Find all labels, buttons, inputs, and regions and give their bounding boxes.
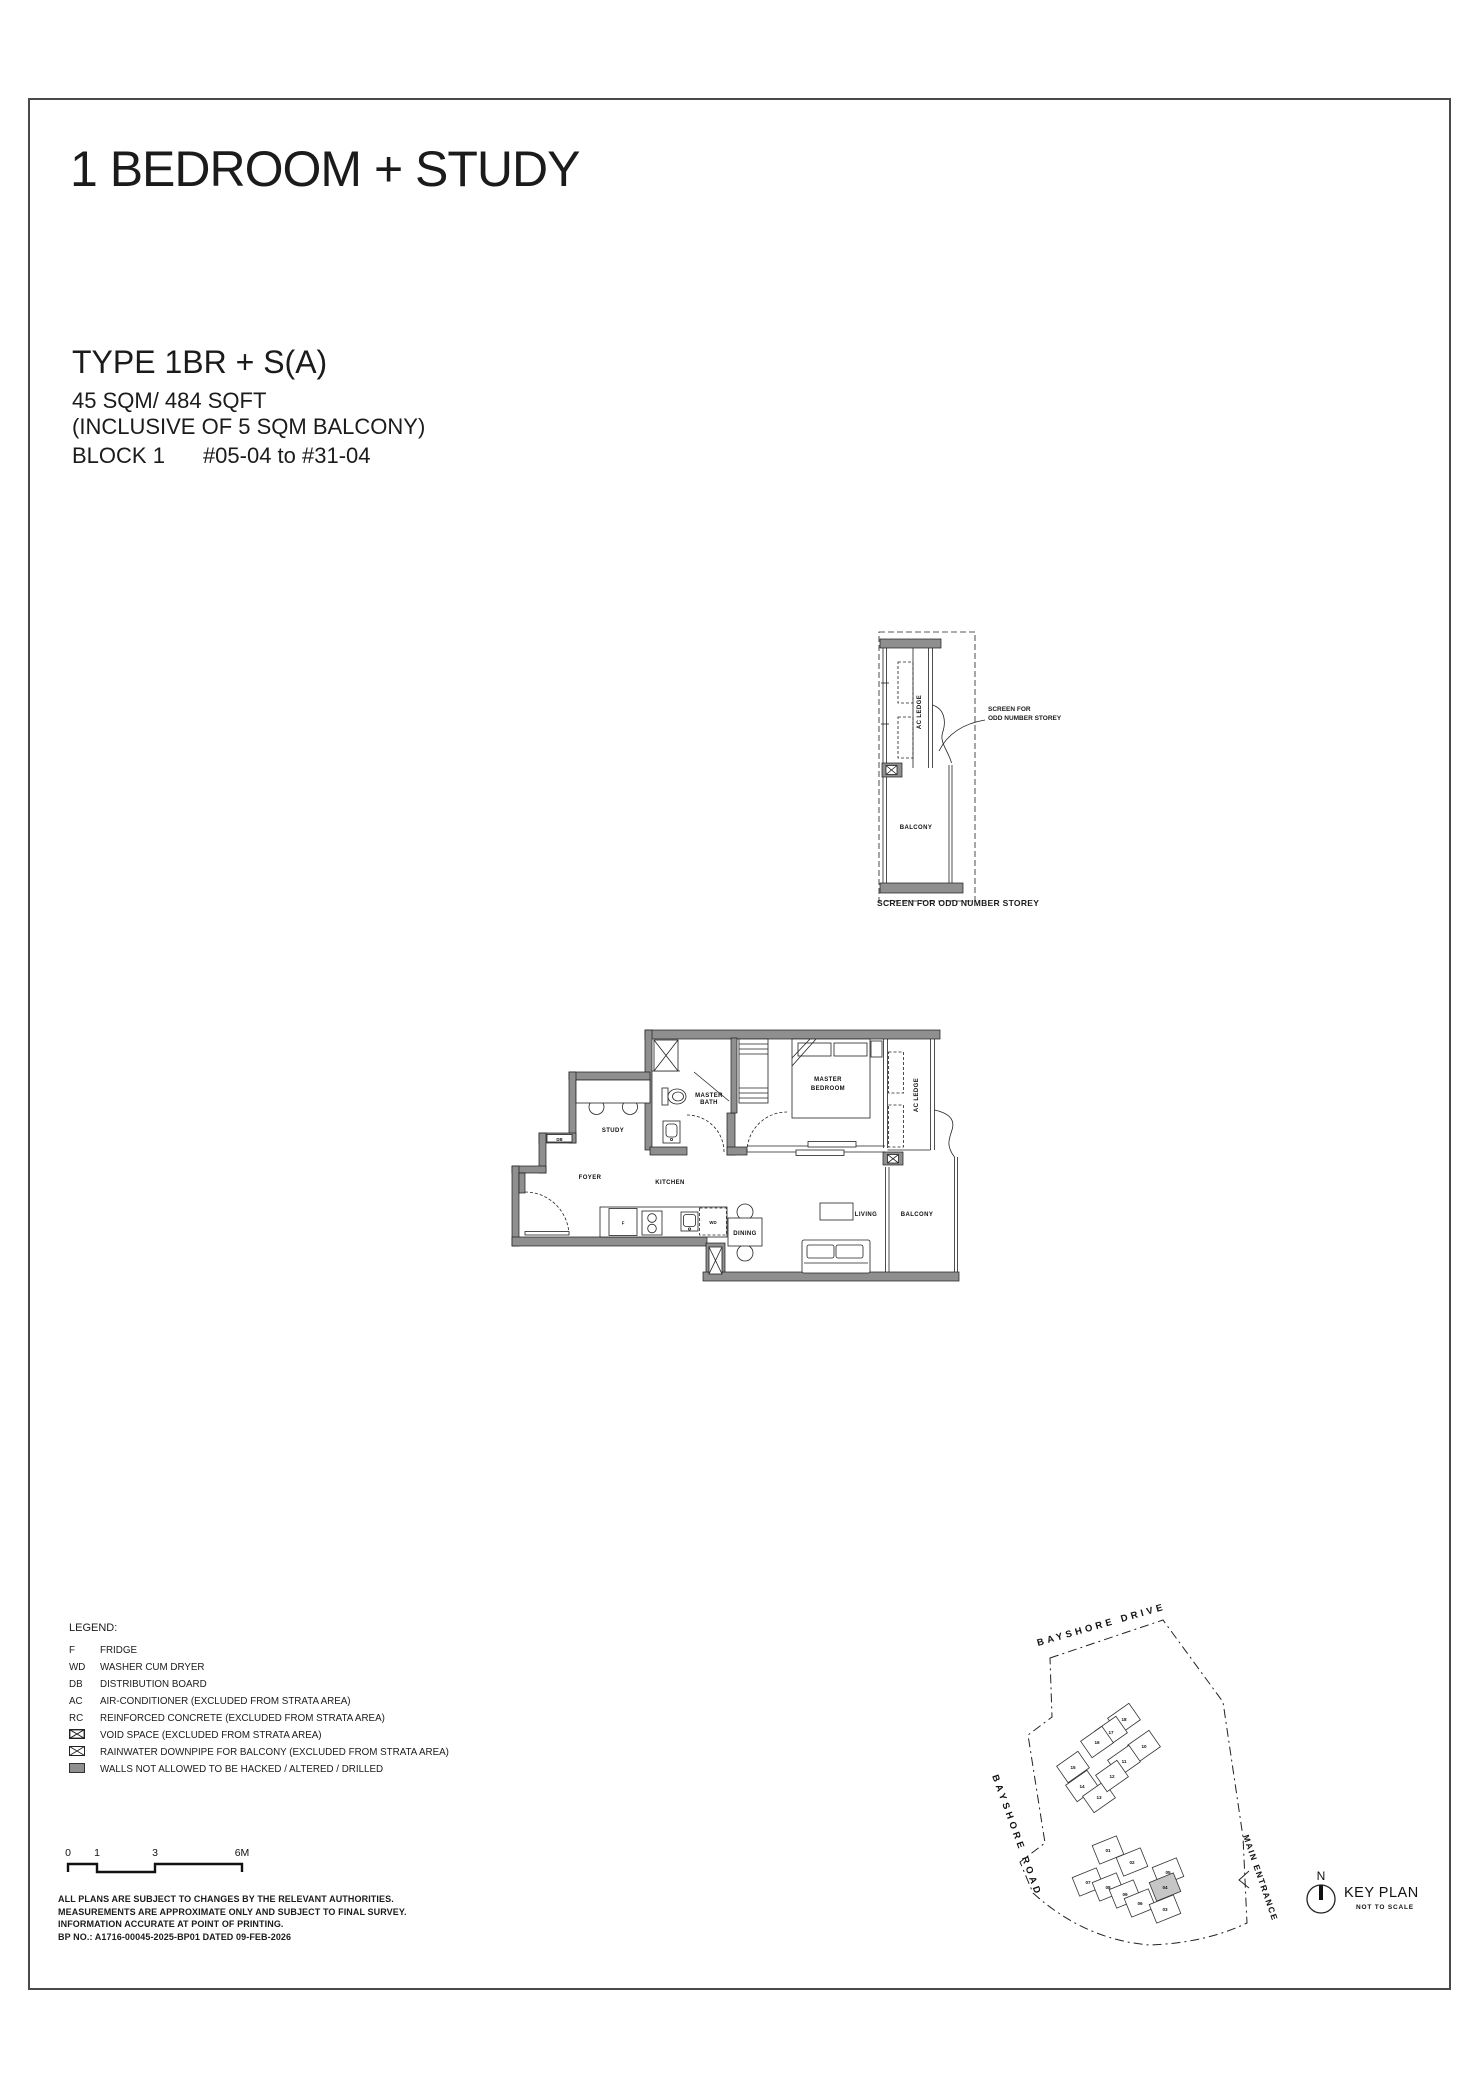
- ac-ledge-label: AC LEDGE: [914, 1078, 920, 1112]
- scale-tick: 1: [94, 1847, 100, 1859]
- svg-text:05: 05: [1165, 1870, 1171, 1875]
- highlighted-unit-label: 04: [1162, 1885, 1168, 1890]
- unit-block-row: BLOCK 1#05-04 to #31-04: [72, 443, 425, 469]
- svg-text:07: 07: [1085, 1880, 1091, 1885]
- kitchen-label: KITCHEN: [655, 1180, 684, 1186]
- svg-text:01: 01: [1105, 1848, 1111, 1853]
- unit-info-block: TYPE 1BR + S(A) 45 SQM/ 484 SQFT (INCLUS…: [72, 344, 425, 469]
- unit-stack-range: #05-04 to #31-04: [203, 443, 371, 468]
- svg-text:13: 13: [1096, 1795, 1102, 1800]
- detail-break-curve: [933, 705, 952, 763]
- road-label-bayshore-road: BAYSHORE ROAD: [989, 1773, 1043, 1898]
- void-space-icon: [654, 1040, 678, 1071]
- tv-console: [820, 1203, 853, 1220]
- legend-item: VOID SPACE (EXCLUDED FROM STRATA AREA): [69, 1727, 449, 1744]
- svg-text:06: 06: [1137, 1901, 1143, 1906]
- svg-text:03: 03: [1162, 1907, 1168, 1912]
- db-label: DB: [556, 1137, 562, 1142]
- detail-balcony-label: BALCONY: [900, 825, 932, 831]
- ac-unit-dashed: [889, 1105, 904, 1147]
- screen-annotation: SCREEN FOR ODD NUMBER STOREY: [988, 705, 1061, 723]
- legend-item: ACAIR-CONDITIONER (EXCLUDED FROM STRATA …: [69, 1693, 449, 1710]
- void-space-icon: [69, 1729, 85, 1739]
- break-curve: [935, 1110, 955, 1157]
- svg-text:10: 10: [1141, 1744, 1147, 1749]
- legend-item: RCREINFORCED CONCRETE (EXCLUDED FROM STR…: [69, 1710, 449, 1727]
- svg-text:15: 15: [1070, 1765, 1076, 1770]
- annotation-leader-line: [939, 720, 985, 751]
- study-desk: [576, 1080, 650, 1103]
- svg-text:18: 18: [1121, 1717, 1127, 1722]
- svg-text:11: 11: [1122, 1759, 1127, 1764]
- svg-text:14: 14: [1079, 1784, 1085, 1789]
- svg-text:09: 09: [1122, 1892, 1128, 1897]
- protected-wall-icon: [69, 1763, 85, 1773]
- master-bedroom-label: MASTER: [814, 1077, 842, 1083]
- fridge-label: F: [622, 1221, 625, 1226]
- rainwater-downpipe-icon: [886, 766, 897, 775]
- floor-plan-page: 1 BEDROOM + STUDY TYPE 1BR + S(A) 45 SQM…: [0, 0, 1478, 2086]
- dining-chair: [737, 1204, 753, 1220]
- void-space-icon: [709, 1247, 722, 1274]
- unit-area: 45 SQM/ 484 SQFT: [72, 388, 425, 414]
- tower-cluster-upper: [1057, 1703, 1161, 1812]
- master-bath-label: MASTER: [695, 1093, 723, 1099]
- rainwater-downpipe-icon: [69, 1746, 85, 1756]
- scale-tick: 0: [65, 1847, 71, 1859]
- balcony-screen-detail-plan: AC LEDGE BALCONY: [855, 625, 995, 905]
- svg-text:02: 02: [1129, 1860, 1135, 1865]
- legend-item: WDWASHER CUM DRYER: [69, 1659, 449, 1676]
- washer-dryer-label: WD: [709, 1220, 716, 1225]
- page-title: 1 BEDROOM + STUDY: [70, 140, 580, 198]
- legend: LEGEND: FFRIDGE WDWASHER CUM DRYER DBDIS…: [69, 1622, 449, 1778]
- detail-caption: SCREEN FOR ODD NUMBER STOREY: [877, 898, 1039, 908]
- kitchen-counter: [600, 1207, 727, 1237]
- study-label: STUDY: [602, 1128, 624, 1134]
- sliding-door-panel: [796, 1150, 844, 1156]
- svg-text:16: 16: [1094, 1740, 1100, 1745]
- bedside-table: [871, 1041, 882, 1057]
- key-plan-subtitle: NOT TO SCALE: [1356, 1904, 1414, 1911]
- north-arrow-icon: N: [1307, 1869, 1335, 1913]
- ac-unit-dashed: [889, 1052, 904, 1093]
- living-label: LIVING: [855, 1212, 877, 1218]
- wardrobe: [739, 1039, 768, 1103]
- ac-unit-dashed: [898, 662, 913, 703]
- key-plan-title: KEY PLAN: [1344, 1885, 1419, 1901]
- disclaimer: ALL PLANS ARE SUBJECT TO CHANGES BY THE …: [58, 1893, 407, 1943]
- sofa: [802, 1240, 870, 1273]
- foyer-label: FOYER: [579, 1175, 602, 1181]
- main-entrance-arrow: [1239, 1871, 1249, 1888]
- svg-text:N: N: [1317, 1869, 1326, 1883]
- legend-title: LEGEND:: [69, 1622, 449, 1634]
- ac-unit-dashed: [898, 717, 913, 758]
- balcony-label: BALCONY: [901, 1212, 933, 1218]
- scale-tick: 6M: [235, 1847, 250, 1859]
- legend-item: WALLS NOT ALLOWED TO BE HACKED / ALTERED…: [69, 1761, 449, 1778]
- svg-text:BATH: BATH: [700, 1100, 718, 1106]
- unit-area-note: (INCLUSIVE OF 5 SQM BALCONY): [72, 414, 425, 440]
- legend-item: RAINWATER DOWNPIPE FOR BALCONY (EXCLUDED…: [69, 1744, 449, 1761]
- main-floor-plan: STUDY FOYER KITCHEN DINING LIVING BALCON…: [490, 1000, 970, 1300]
- toilet: [662, 1088, 686, 1105]
- svg-text:08: 08: [1105, 1885, 1111, 1890]
- legend-item: DBDISTRIBUTION BOARD: [69, 1676, 449, 1693]
- svg-text:BEDROOM: BEDROOM: [811, 1086, 845, 1092]
- main-entrance-label: MAIN ENTRANCE: [1241, 1833, 1280, 1922]
- svg-text:17: 17: [1108, 1730, 1114, 1735]
- unit-type: TYPE 1BR + S(A): [72, 344, 425, 380]
- bath-sink: [663, 1121, 680, 1143]
- sliding-door-panel: [808, 1142, 856, 1148]
- detail-ac-ledge-label: AC LEDGE: [917, 695, 923, 729]
- dining-label: DINING: [733, 1231, 756, 1237]
- rainwater-downpipe-icon: [888, 1155, 899, 1164]
- scale-tick: 3: [152, 1847, 158, 1859]
- scale-bar: 0 1 3 6M: [55, 1840, 255, 1885]
- legend-item: FFRIDGE: [69, 1642, 449, 1659]
- unit-block: BLOCK 1: [72, 443, 165, 468]
- key-plan: BAYSHORE DRIVE BAYSHORE ROAD MAIN ENTRAN…: [980, 1580, 1450, 1980]
- dining-chair: [737, 1245, 753, 1261]
- svg-text:12: 12: [1109, 1774, 1115, 1779]
